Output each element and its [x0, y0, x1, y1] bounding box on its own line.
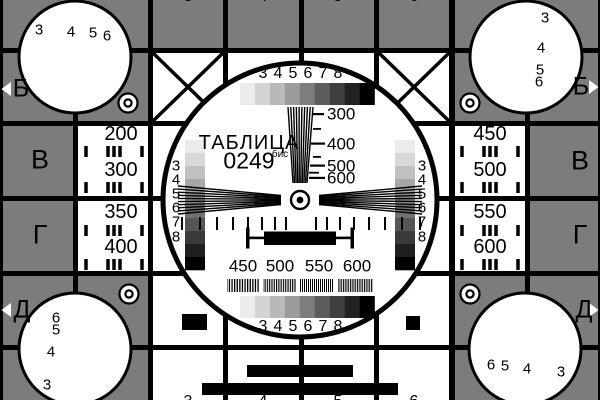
gray-label: 7	[319, 66, 328, 82]
fan-label: 3	[43, 378, 51, 393]
panel-value: 500	[473, 160, 506, 180]
edge-letter-left-v: В	[31, 147, 49, 174]
edge-letter-right-g: Г	[573, 222, 588, 249]
panel-value: 600	[473, 237, 506, 257]
fan-label: 4	[47, 345, 55, 360]
clipped-digit-top: 6	[410, 0, 419, 5]
panel-value: 350	[104, 202, 137, 222]
stair-label: 8	[172, 230, 180, 245]
panel-value: 450	[473, 124, 506, 144]
wedge-scale-label: 600	[327, 169, 355, 186]
edge-letter-left-b: Б	[13, 77, 29, 102]
gray-label: 4	[274, 319, 283, 335]
test-card: ТАБЛИЦА 0249 бис 3 4 5 6 7 8 3 4 5 6 7 8…	[0, 0, 600, 400]
gray-label: 5	[289, 66, 298, 82]
fan-label: 3	[35, 22, 43, 37]
burst-label: 450	[229, 258, 257, 275]
fan-label: 4	[523, 361, 531, 376]
panel-value: 300	[104, 160, 137, 180]
burst-label: 500	[266, 258, 294, 275]
clipped-digit-top: 5	[334, 0, 343, 5]
gray-label: 8	[334, 319, 343, 335]
card-code: 0249	[223, 150, 274, 173]
wedge-scale-label: 400	[327, 135, 355, 152]
fan-label: 5	[89, 26, 97, 41]
fan-label: 4	[537, 41, 545, 56]
fan-label: 3	[557, 364, 565, 379]
fan-label: 5	[52, 323, 60, 338]
fan-label: 5	[501, 359, 509, 374]
gray-label: 3	[259, 66, 268, 82]
clipped-digit-top: 3	[184, 0, 193, 5]
edge-letter-right-d: Д	[576, 298, 593, 323]
stair-label: 7	[418, 215, 426, 230]
stair-label: 7	[172, 215, 180, 230]
panel-value: 400	[104, 237, 137, 257]
clipped-digit-top: 4	[259, 0, 268, 5]
clipped-digit-bottom: 3	[184, 394, 193, 400]
fan-label: 6	[103, 29, 111, 44]
edge-letter-left-g: Г	[33, 222, 48, 249]
fan-label: 3	[541, 10, 549, 25]
edge-letter-right-v: В	[571, 148, 589, 175]
burst-label: 600	[343, 258, 371, 275]
gray-label: 8	[334, 66, 343, 82]
panel-value: 550	[473, 202, 506, 222]
gray-label: 6	[304, 319, 313, 335]
fan-label: 4	[67, 24, 75, 39]
fan-label: 6	[535, 75, 543, 90]
edge-letter-right-b: Б	[573, 75, 589, 100]
edge-letter-left-d: Д	[14, 298, 31, 323]
gray-label: 6	[304, 66, 313, 82]
gray-label: 4	[274, 66, 283, 82]
card-code-suffix: бис	[272, 150, 288, 160]
gray-label: 3	[259, 319, 268, 335]
text-layer: ТАБЛИЦА 0249 бис 3 4 5 6 7 8 3 4 5 6 7 8…	[0, 0, 600, 400]
fan-label: 6	[487, 358, 495, 373]
burst-label: 550	[305, 258, 333, 275]
panel-value: 200	[104, 124, 137, 144]
gray-label: 5	[289, 319, 298, 335]
wedge-scale-label: 300	[327, 106, 355, 123]
clipped-digit-bottom: 5	[334, 394, 343, 400]
stair-label: 8	[418, 230, 426, 245]
clipped-digit-bottom: 4	[259, 394, 268, 400]
clipped-digit-bottom: 6	[410, 394, 419, 400]
gray-label: 7	[319, 319, 328, 335]
